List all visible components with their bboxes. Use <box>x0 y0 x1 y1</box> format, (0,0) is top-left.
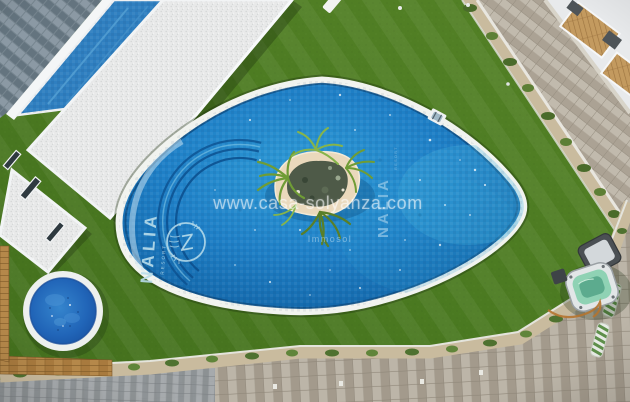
scene-graphics: NALIA RESORT Z <box>0 0 630 402</box>
photo-vignette <box>0 0 630 402</box>
aerial-resort-pool-photo: NALIA RESORT Z <box>0 0 630 402</box>
